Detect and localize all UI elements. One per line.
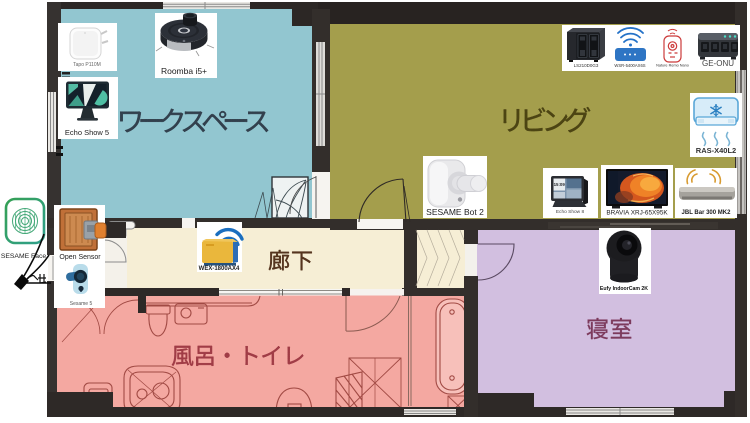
svg-text:Sesame 5: Sesame 5 xyxy=(70,301,93,307)
svg-text:Roomba i5+: Roomba i5+ xyxy=(161,66,207,76)
svg-text:SESAME Bot 2: SESAME Bot 2 xyxy=(426,207,484,217)
svg-text:Nature Remo Nano: Nature Remo Nano xyxy=(656,64,689,68)
svg-text:Open Sensor: Open Sensor xyxy=(59,254,101,261)
svg-text:WEX-1800AX4: WEX-1800AX4 xyxy=(199,266,240,272)
svg-text:WSR-5400AX6S: WSR-5400AX6S xyxy=(614,63,645,68)
svg-text:SESAME Face: SESAME Face xyxy=(1,253,47,260)
svg-text:JBL Bar 300 MK2: JBL Bar 300 MK2 xyxy=(682,210,732,216)
svg-text:BRAVIA XRJ-65X95K: BRAVIA XRJ-65X95K xyxy=(606,210,668,217)
svg-text:Echo Show 5: Echo Show 5 xyxy=(65,128,109,137)
svg-text:LS210D0G3: LS210D0G3 xyxy=(574,63,599,68)
svg-text:Tapo P110M: Tapo P110M xyxy=(73,62,101,68)
svg-text:15:09: 15:09 xyxy=(554,182,566,187)
svg-text:Eufy IndoorCam 2K: Eufy IndoorCam 2K xyxy=(600,286,648,292)
svg-text:Echo Show 8: Echo Show 8 xyxy=(556,209,585,215)
svg-text:GE-ONU: GE-ONU xyxy=(702,59,734,68)
svg-text:RAS-X40L2: RAS-X40L2 xyxy=(696,146,736,155)
